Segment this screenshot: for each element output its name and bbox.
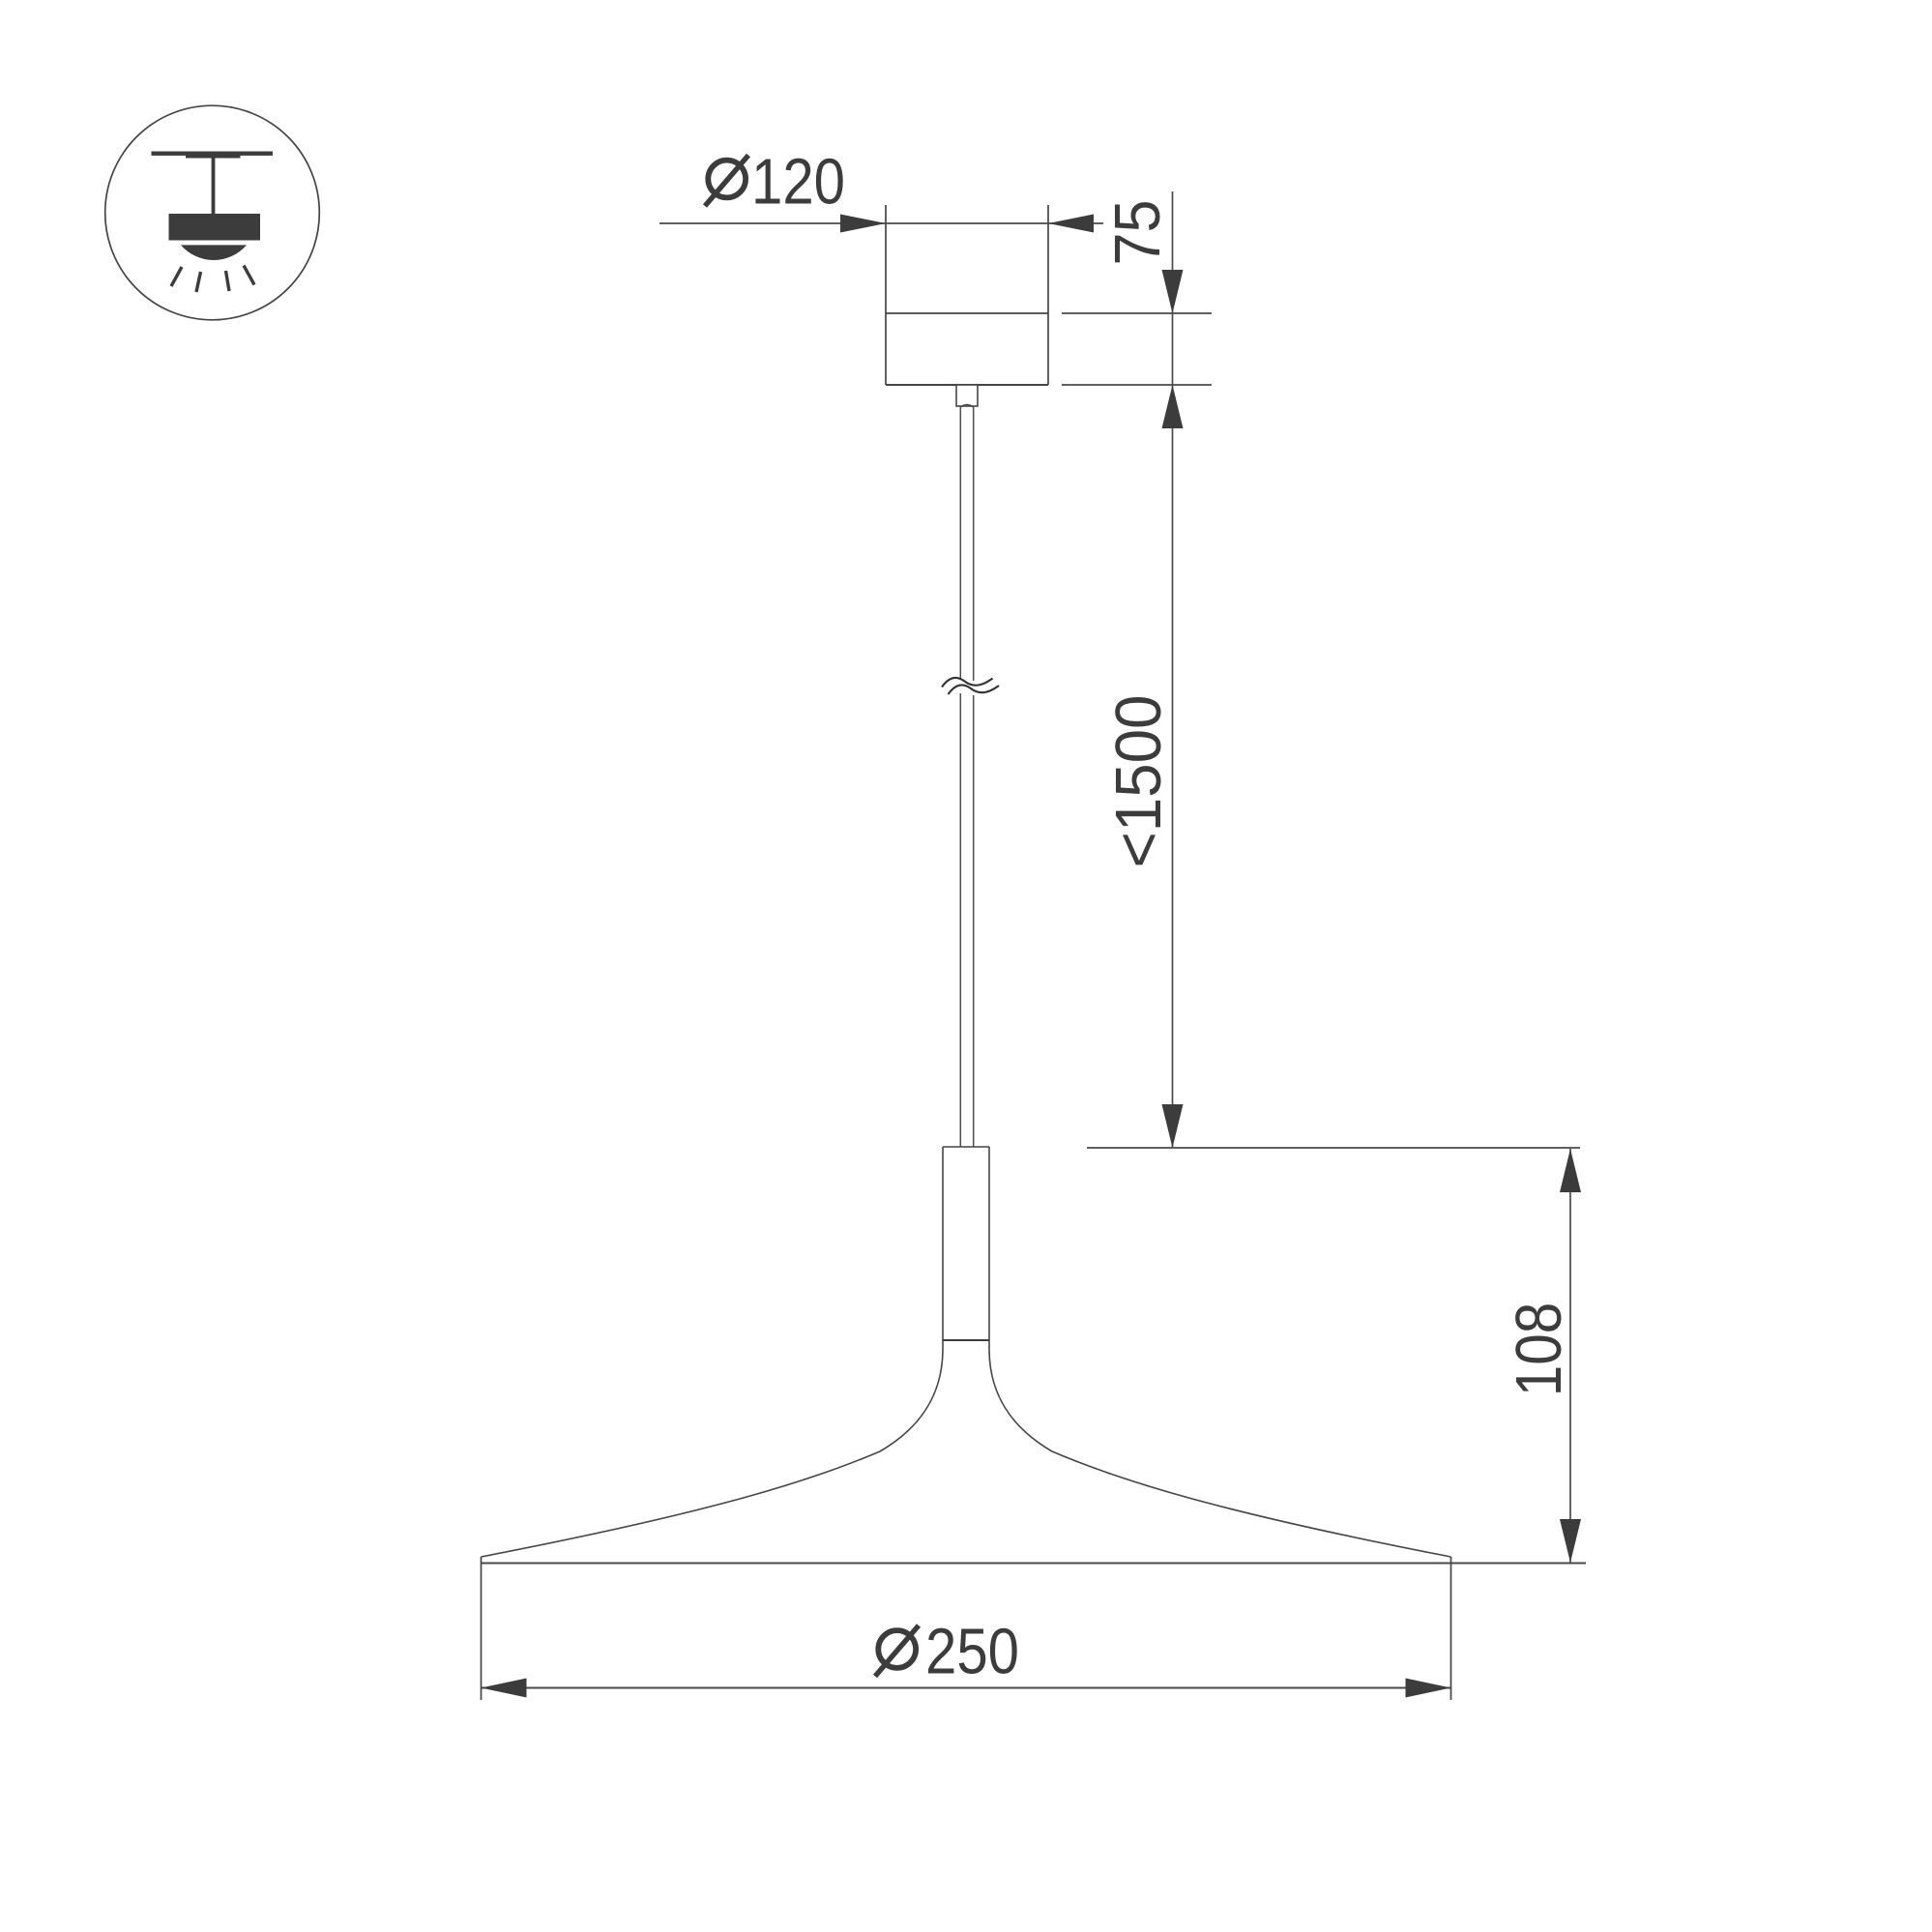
svg-text:75: 75: [1101, 200, 1174, 266]
svg-text:<1500: <1500: [1102, 695, 1175, 868]
svg-text:120: 120: [751, 146, 845, 219]
svg-text:250: 250: [925, 1616, 1019, 1688]
svg-text:108: 108: [1503, 1303, 1575, 1397]
